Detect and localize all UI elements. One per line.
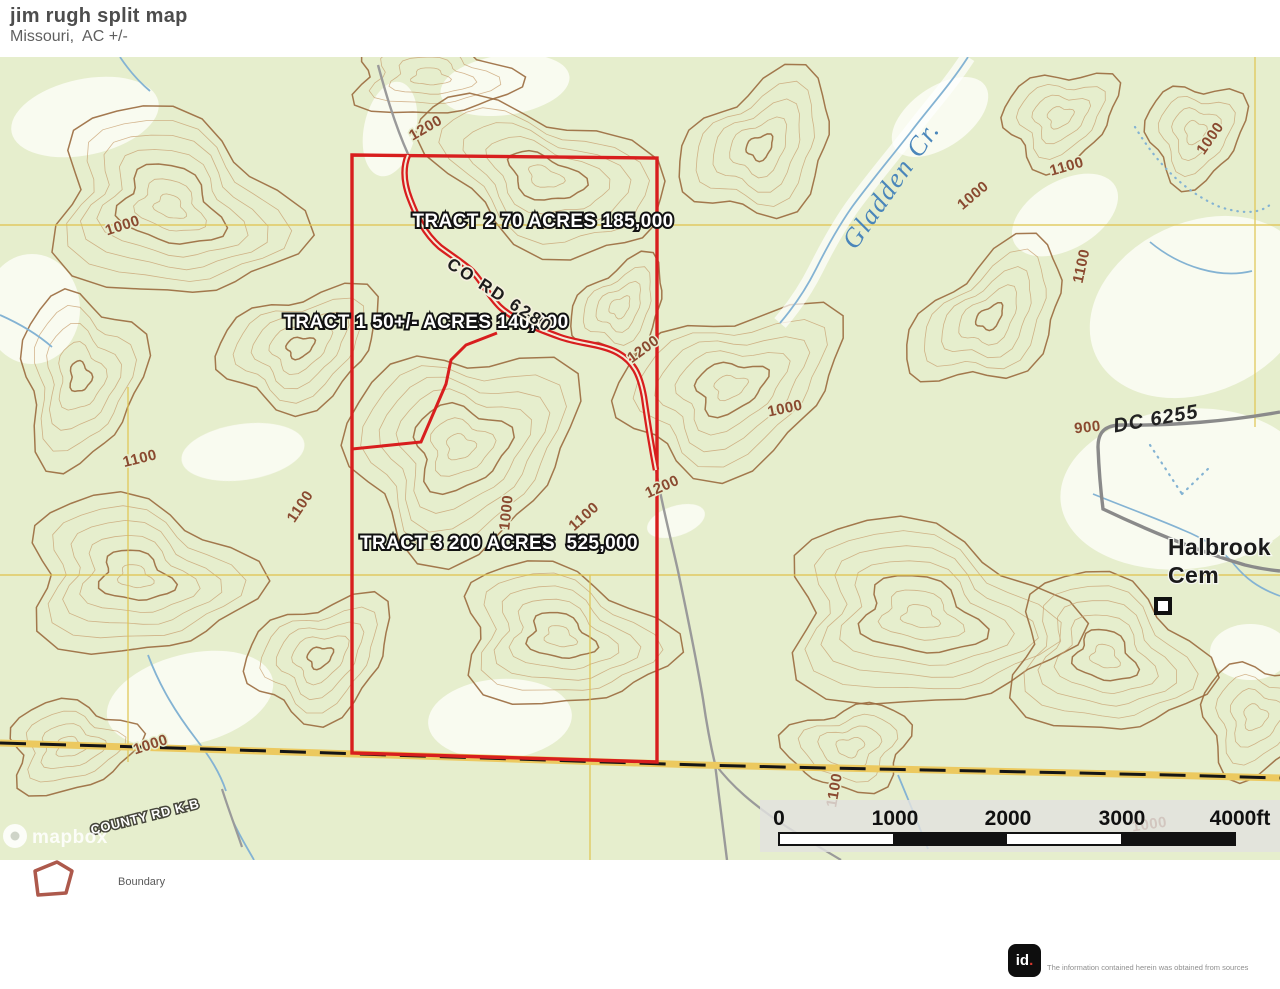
footer-attribution: id. The information contained herein was… <box>1008 944 1280 989</box>
contour-label: 900 <box>1073 418 1101 438</box>
mapbox-attribution[interactable]: mapbox <box>3 824 108 848</box>
tract2-label: TRACT 2 70 ACRES 185,000 <box>412 211 673 232</box>
scale-tick-4000ft: 4000ft <box>1210 807 1271 830</box>
landid-logo: id. <box>1008 944 1041 977</box>
boundary-legend-icon <box>26 858 80 900</box>
disclaimer-line: The information contained herein was obt… <box>1047 963 1280 973</box>
cemetery-square-icon <box>1156 599 1170 613</box>
scale-tick-3000: 3000 <box>1099 807 1146 830</box>
map-canvas[interactable]: TRACT 2 70 ACRES 185,000 TRACT 1 50+/- A… <box>0 57 1280 860</box>
page-title: jim rugh split map <box>10 4 188 28</box>
cemetery-label-line1: Halbrook <box>1168 534 1271 560</box>
disclaimer-text: The information contained herein was obt… <box>1047 944 1280 989</box>
boundary-legend-label: Boundary <box>118 876 165 888</box>
cemetery-label-line2: Cem <box>1168 562 1219 588</box>
scale-tick-1000: 1000 <box>872 807 919 830</box>
landid-logo-dot: . <box>1029 952 1033 969</box>
page-subtitle: Missouri, AC +/- <box>10 28 188 46</box>
mapbox-logo-inner <box>11 832 20 841</box>
scale-tick-0: 0 <box>773 807 785 830</box>
landid-logo-text: id <box>1016 952 1029 969</box>
title-block: jim rugh split map Missouri, AC +/- <box>10 4 188 46</box>
scale-bar: 0 1000 2000 3000 4000ft <box>760 800 1280 852</box>
scale-tick-2000: 2000 <box>985 807 1032 830</box>
topo-map[interactable]: TRACT 2 70 ACRES 185,000 TRACT 1 50+/- A… <box>0 57 1280 860</box>
legend-row: Boundary <box>26 858 165 900</box>
mapbox-wordmark: mapbox <box>32 827 108 848</box>
tract3-label: TRACT 3 200 ACRES 525,000 <box>360 533 638 554</box>
